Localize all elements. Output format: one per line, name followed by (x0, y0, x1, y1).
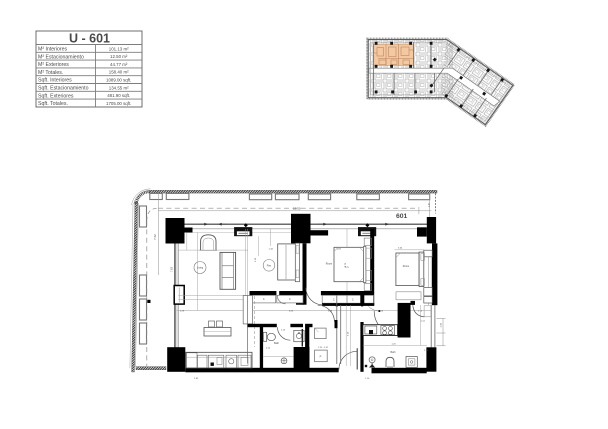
svg-text:Flex: Flex (267, 264, 272, 267)
svg-text:2.62: 2.62 (194, 378, 199, 380)
svg-text:12.50 m²: 12.50 m² (110, 54, 128, 59)
svg-text:M² Exteriores: M² Exteriores (38, 62, 69, 68)
svg-text:Sqft. Exteriores: Sqft. Exteriores (38, 93, 74, 99)
svg-text:601: 601 (396, 213, 408, 220)
svg-text:Bath: Bath (391, 351, 397, 354)
svg-text:1.34: 1.34 (441, 322, 443, 327)
svg-text:2.14: 2.14 (266, 348, 271, 350)
svg-text:2.47: 2.47 (428, 202, 430, 207)
svg-text:1.70 - 1.37: 1.70 - 1.37 (318, 347, 329, 349)
svg-text:1.10: 1.10 (365, 378, 370, 380)
svg-text:134.55 m²: 134.55 m² (109, 85, 129, 90)
svg-text:1089.00 sqft.: 1089.00 sqft. (106, 78, 131, 83)
svg-text:1705.00 sqft.: 1705.00 sqft. (106, 101, 131, 106)
svg-text:6.45: 6.45 (289, 311, 294, 313)
svg-text:Sqft. Totales.: Sqft. Totales. (38, 101, 68, 107)
svg-text:101.13 m²: 101.13 m² (109, 46, 129, 51)
svg-text:C.: C. (289, 299, 292, 301)
svg-text:P: P (320, 355, 322, 359)
svg-text:1.10: 1.10 (281, 329, 286, 331)
svg-text:3.54: 3.54 (398, 248, 403, 250)
svg-text:7.62: 7.62 (170, 266, 174, 272)
svg-text:5.15: 5.15 (255, 257, 257, 262)
svg-text:Room: Room (403, 265, 409, 268)
svg-text:M² Totales.: M² Totales. (38, 70, 63, 76)
svg-text:Sqft. Estacionamiento: Sqft. Estacionamiento (38, 86, 89, 92)
svg-text:C.: C. (263, 299, 266, 301)
svg-text:M² Interiores: M² Interiores (38, 47, 68, 53)
svg-text:44.77 m²: 44.77 m² (110, 62, 128, 67)
svg-text:Room: Room (326, 263, 332, 266)
svg-text:1.29: 1.29 (180, 311, 185, 313)
svg-text:Sqft. Interiores: Sqft. Interiores (38, 78, 72, 84)
svg-text:7.62: 7.62 (153, 234, 157, 240)
svg-text:Living: Living (197, 267, 204, 270)
svg-text:C.: C. (352, 300, 355, 302)
svg-text:18.30: 18.30 (293, 207, 301, 211)
svg-text:1.43: 1.43 (269, 249, 274, 251)
svg-text:158.40 m²: 158.40 m² (109, 70, 129, 75)
svg-text:1.14: 1.14 (421, 321, 426, 323)
svg-text:Bath: Bath (274, 342, 280, 345)
svg-text:C.: C. (333, 300, 336, 302)
svg-text:M² Estacionamiento: M² Estacionamiento (38, 54, 84, 60)
svg-text:5.20: 5.20 (348, 331, 350, 336)
svg-text:481.90 sqft.: 481.90 sqft. (107, 93, 130, 98)
svg-text:U - 601: U - 601 (69, 31, 110, 45)
